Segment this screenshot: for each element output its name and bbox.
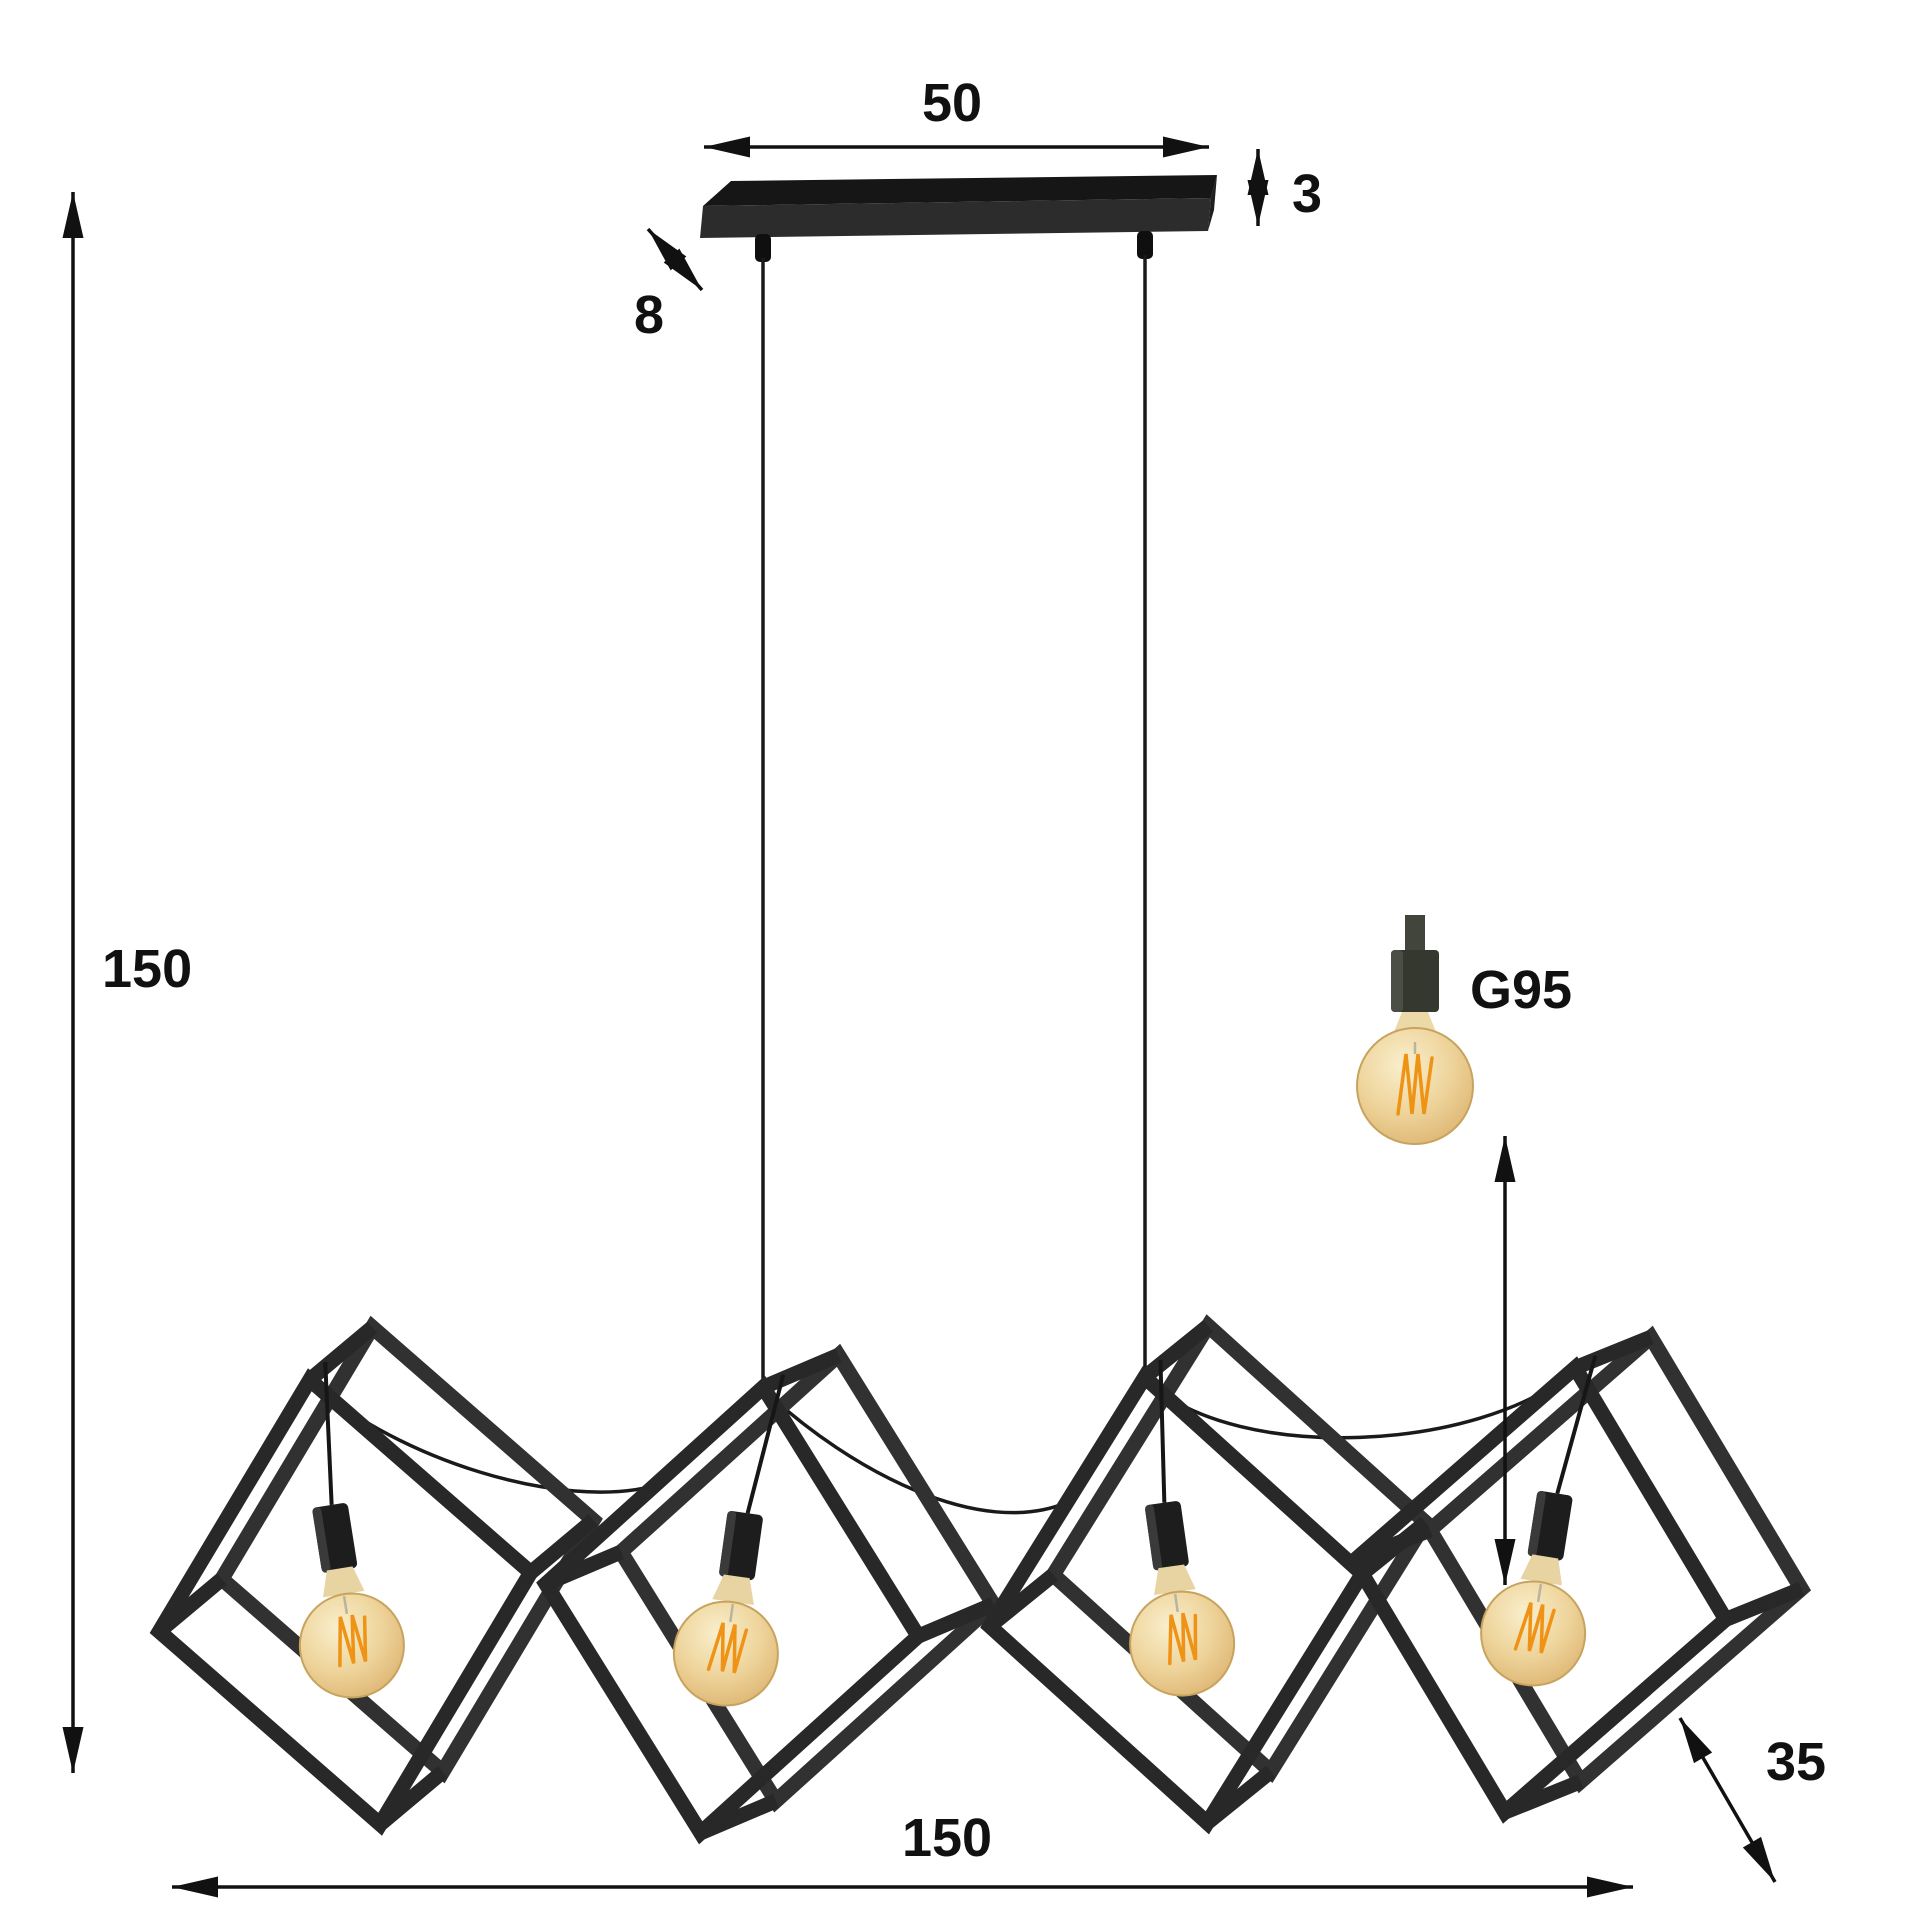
cube-lamp-fixture bbox=[118, 1297, 1837, 1869]
dim-overall-depth-label: 35 bbox=[1766, 1732, 1826, 1792]
bulb-socket-stem bbox=[1405, 915, 1425, 955]
dim-canopy-depth: 8 bbox=[634, 229, 702, 345]
dim-canopy-depth-arrow bbox=[648, 229, 702, 290]
suspension-cords bbox=[763, 255, 1145, 1386]
dim-overall-height-label: 150 bbox=[102, 939, 192, 999]
cord-gland-right bbox=[1137, 231, 1153, 259]
dim-canopy-thickness: 3 bbox=[1258, 149, 1322, 226]
dim-canopy-depth-label: 8 bbox=[634, 285, 664, 345]
cube-frame-2 bbox=[515, 1319, 1025, 1868]
dim-overall-width-label: 150 bbox=[902, 1808, 992, 1868]
bulb-type-label: G95 bbox=[1470, 960, 1572, 1020]
link-wire-1 bbox=[310, 1382, 654, 1492]
bulb-socket-highlight bbox=[1391, 950, 1403, 1012]
dim-overall-height: 150 bbox=[73, 192, 192, 1773]
diagram-canvas: G95 50 3 8 150 150 35 bbox=[0, 0, 1920, 1920]
product-dimension-diagram: G95 50 3 8 150 150 35 bbox=[0, 0, 1920, 1920]
dim-overall-depth: 35 bbox=[1680, 1718, 1826, 1882]
dim-canopy-thickness-label: 3 bbox=[1292, 164, 1322, 224]
ceiling-canopy bbox=[700, 175, 1217, 262]
dim-canopy-width-label: 50 bbox=[922, 73, 982, 133]
dim-canopy-width: 50 bbox=[704, 73, 1209, 147]
cord-gland-left bbox=[755, 234, 771, 262]
cube-frame-3 bbox=[953, 1300, 1463, 1849]
dim-overall-depth-arrow bbox=[1680, 1718, 1775, 1882]
